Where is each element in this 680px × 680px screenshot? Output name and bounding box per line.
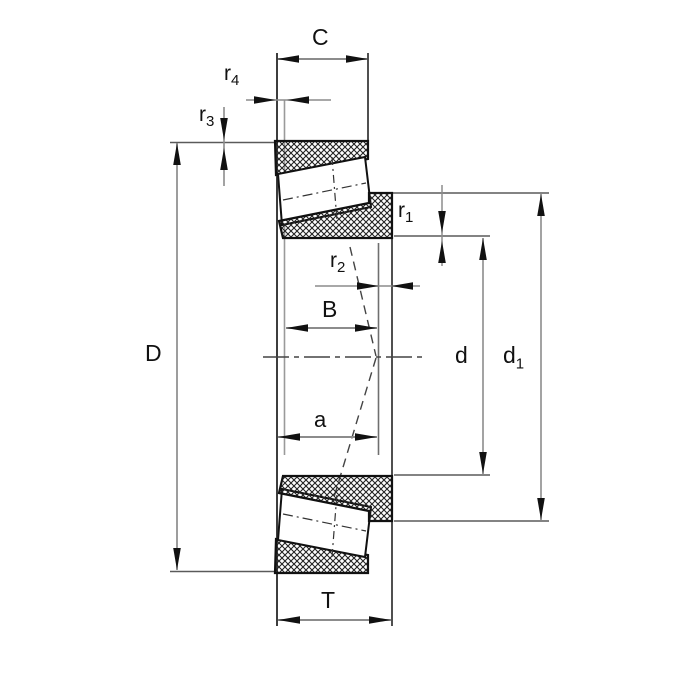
dim-label-T: T [321, 589, 335, 612]
bearing-drawing-svg [0, 0, 680, 680]
dim-label-r1: r1 [398, 200, 413, 221]
bearing-dimension-drawing: C r4 r3 D B a T r1 r2 d d1 [0, 0, 680, 680]
dim-label-r3: r3 [199, 104, 214, 125]
dim-label-r2: r2 [330, 250, 345, 271]
dim-label-D: D [145, 342, 162, 365]
dim-label-d1: d1 [503, 344, 524, 367]
dim-label-a: a [314, 409, 326, 431]
dim-label-B: B [322, 298, 337, 321]
bearing-section-top [275, 141, 392, 238]
dim-label-d: d [455, 344, 468, 367]
bearing-section-bottom [275, 476, 392, 573]
dim-label-C: C [312, 26, 329, 49]
dim-label-r4: r4 [224, 63, 239, 84]
